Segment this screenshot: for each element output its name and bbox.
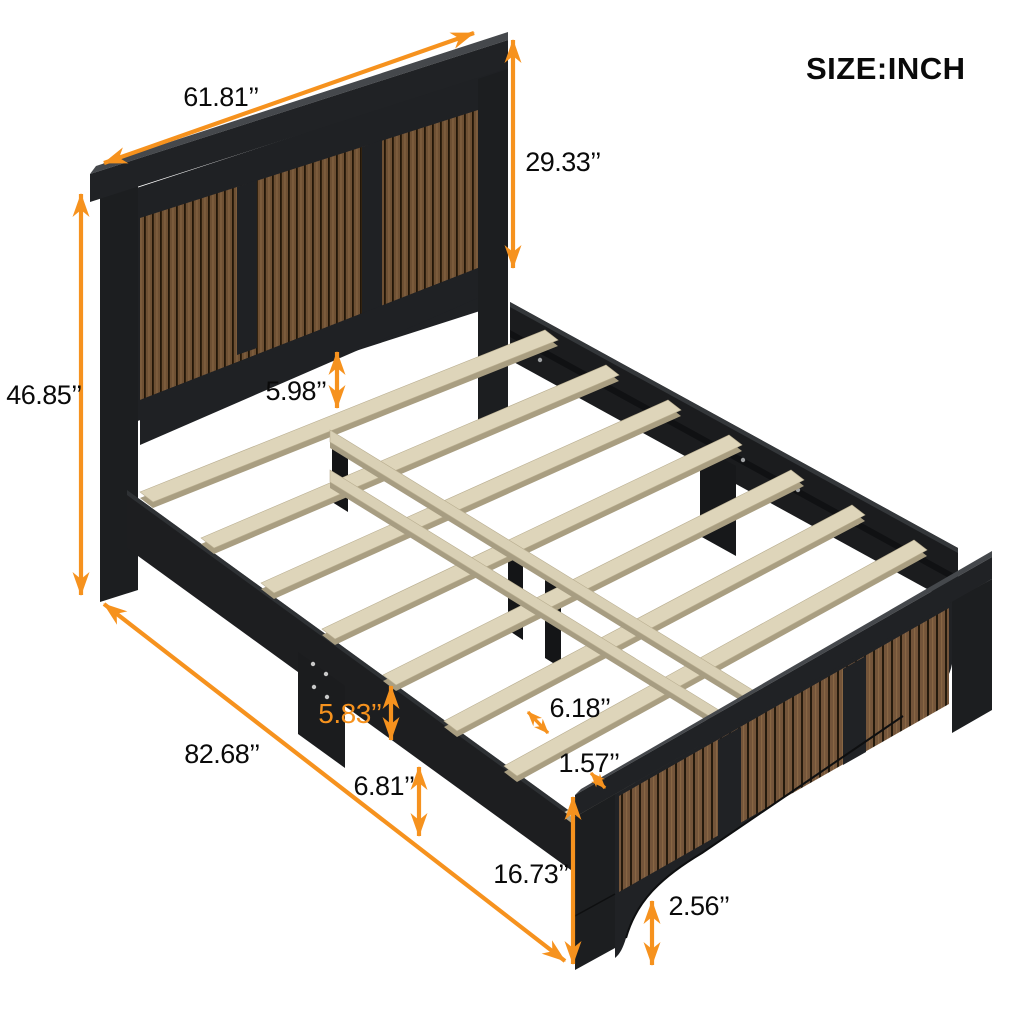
footboard-right-post: [952, 579, 992, 733]
size-unit-title: SIZE:INCH: [806, 51, 966, 86]
bed-diagram-canvas: SIZE:INCH 61.81’’ 29.33’’ 5.98’’ 46.85’’…: [0, 0, 1024, 1024]
dim-label-overall-height: 46.85’’: [6, 380, 82, 410]
dim-label-footboard-height: 16.73’’: [493, 859, 569, 889]
dim-label-slat-thickness: 1.57’’: [558, 748, 619, 778]
headboard-panel-divider: [362, 140, 382, 315]
dim-label-headboard-width: 61.81’’: [183, 82, 259, 112]
headboard-panel-divider: [237, 180, 257, 355]
dim-label-under-bed-clearance: 6.81’’: [353, 771, 414, 801]
screw-hole: [538, 358, 542, 362]
screw-hole: [324, 672, 328, 676]
footboard-left-post: [575, 794, 615, 970]
dim-label-foot-clearance: 2.56’’: [668, 891, 729, 921]
dim-arrow-slat-spacing: [528, 712, 548, 733]
dim-label-headboard-to-slat-gap: 5.98’’: [265, 376, 326, 406]
product-dimension-diagram: SIZE:INCH 61.81’’ 29.33’’ 5.98’’ 46.85’’…: [0, 0, 1024, 1024]
dim-label-overall-length: 82.68’’: [184, 739, 260, 769]
screw-hole: [741, 458, 745, 462]
dim-label-side-rail-height: 5.83’’: [318, 698, 381, 729]
dim-label-slat-spacing: 6.18’’: [549, 693, 610, 723]
footboard-panel-divider: [718, 727, 741, 836]
screw-hole: [311, 662, 315, 666]
screw-hole: [312, 685, 316, 689]
dim-label-headboard-height: 29.33’’: [525, 147, 601, 177]
